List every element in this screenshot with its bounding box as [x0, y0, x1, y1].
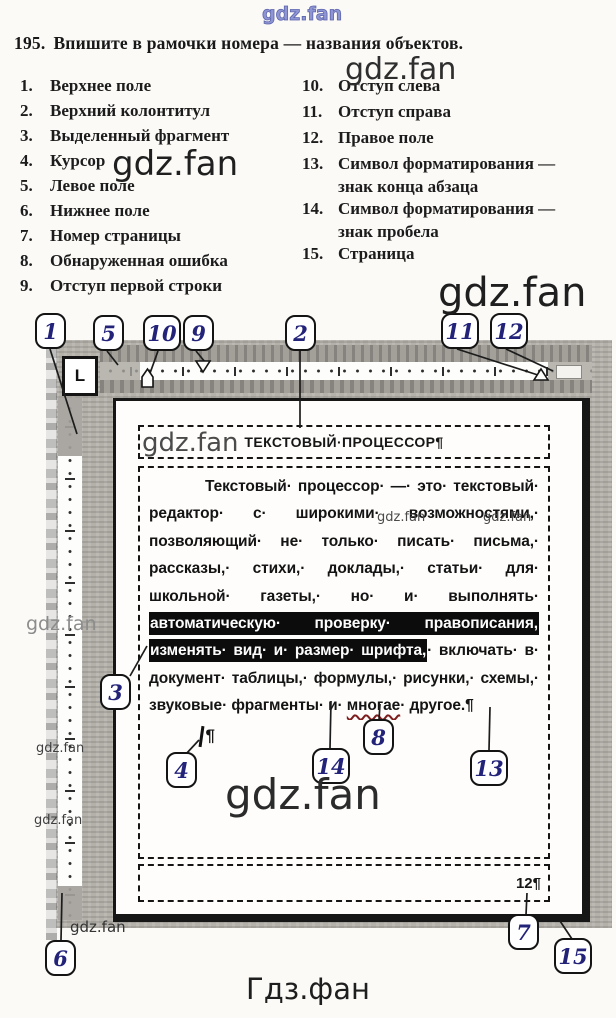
- top-margin-zone: [58, 398, 82, 456]
- callout-box-15: 15: [554, 938, 592, 974]
- page-body-area: Текстовый· процессор· —· это· текстовый·…: [138, 466, 550, 859]
- callout-box-4: 4: [166, 752, 197, 788]
- text-segment: позволяющий· не· только· писать· письма,…: [149, 533, 539, 550]
- item-number: 13.: [302, 154, 338, 174]
- misspelled-word: многае: [347, 697, 400, 714]
- list-item: 11.Отступ справа: [302, 102, 608, 128]
- item-label: Символ форматирования —: [338, 199, 555, 219]
- document-line: рассказы,· стихи,· доклады,· статьи· для…: [149, 555, 539, 582]
- list-item: 15.Страница: [302, 244, 608, 267]
- right-margin-notch: [556, 365, 582, 379]
- item-number: 7.: [20, 226, 50, 246]
- item-label: Левое поле: [50, 176, 135, 196]
- item-number: 9.: [20, 276, 50, 296]
- list-item: 5.Левое поле: [20, 176, 298, 201]
- horizontal-ruler: [100, 345, 592, 393]
- header-text: ТЕКСТОВЫЙ·ПРОЦЕССОР¶: [244, 434, 443, 450]
- vertical-ruler: [58, 398, 82, 920]
- callout-box-1: 1: [35, 313, 66, 349]
- document-line: документ· таблицы,· формулы,· рисунки,· …: [149, 665, 539, 692]
- list-item: 13.Символ форматирования —: [302, 154, 608, 177]
- item-number: 2.: [20, 101, 50, 121]
- text-segment: редактор· с· широкими· возможностями,·: [149, 505, 539, 522]
- item-number: 1.: [20, 76, 50, 96]
- text-segment: Текстовый· процессор· —· это· текстовый·: [205, 478, 539, 495]
- list-item: 4.Курсор: [20, 151, 298, 176]
- document-page: ТЕКСТОВЫЙ·ПРОЦЕССОР¶ Текстовый· процессо…: [113, 398, 590, 922]
- item-label: Выделенный фрагмент: [50, 126, 229, 146]
- left-margin-zone: [100, 362, 140, 380]
- callout-box-14: 14: [312, 748, 350, 784]
- list-item: 2.Верхний колонтитул: [20, 101, 298, 126]
- answer-list-right: 10.Отступ слева 11.Отступ справа 12.Прав…: [302, 76, 608, 267]
- text-segment: · другое.¶: [400, 697, 473, 714]
- selected-text: автоматическую· проверку· правописания,: [149, 612, 539, 635]
- text-segment: · включать· в·: [427, 642, 539, 659]
- list-item: 6.Нижнее поле: [20, 201, 298, 226]
- item-label: Страница: [338, 244, 414, 264]
- callout-box-9: 9: [183, 315, 214, 351]
- list-item: 7.Номер страницы: [20, 226, 298, 251]
- item-label-line2: знак конца абзаца: [338, 177, 608, 199]
- item-number: 12.: [302, 128, 338, 148]
- item-number: 3.: [20, 126, 50, 146]
- item-number: 5.: [20, 176, 50, 196]
- pilcrow-mark: ¶: [206, 726, 215, 746]
- text-segment: школьной· газеты,· но· и· выполнять·: [149, 588, 539, 605]
- callout-box-2: 2: [285, 315, 316, 351]
- tab-selector-label: L: [75, 366, 85, 386]
- item-number: 15.: [302, 244, 338, 264]
- ruler-tick-band: [100, 362, 592, 380]
- text-segment: рассказы,· стихи,· доклады,· статьи· для…: [149, 560, 539, 577]
- page-header-area: ТЕКСТОВЫЙ·ПРОЦЕССОР¶: [138, 425, 550, 459]
- paragraph-text: Текстовый· процессор· —· это· текстовый·…: [149, 473, 539, 720]
- document-line: редактор· с· широкими· возможностями,·: [149, 500, 539, 527]
- item-number: 10.: [302, 76, 338, 96]
- watermark: gdz.fan: [438, 270, 586, 316]
- callout-box-3: 3: [100, 674, 131, 710]
- list-item: 9.Отступ первой строки: [20, 276, 298, 301]
- watermark: gdz.fan: [262, 3, 342, 25]
- list-item: 8.Обнаруженная ошибка: [20, 251, 298, 276]
- list-item: 14.Символ форматирования —: [302, 199, 608, 222]
- item-label: Верхний колонтитул: [50, 101, 210, 121]
- list-item: 10.Отступ слева: [302, 76, 608, 102]
- document-line: звуковые· фрагменты· и· многае· другое.¶: [149, 692, 539, 719]
- document-line: автоматическую· проверку· правописания,: [149, 610, 539, 637]
- page-number: 12¶: [516, 875, 541, 892]
- item-number: 4.: [20, 151, 50, 171]
- scanned-textbook-page: { "brand": { "watermark": "gdz.fan", "wa…: [0, 0, 616, 1018]
- item-number: 11.: [302, 102, 338, 122]
- list-item: 1.Верхнее поле: [20, 76, 298, 101]
- item-label-line2: знак пробела: [338, 222, 608, 244]
- item-number: 6.: [20, 201, 50, 221]
- scan-edge-artifact: [46, 340, 57, 940]
- callout-box-5: 5: [93, 315, 124, 351]
- item-label: Отступ слева: [338, 76, 440, 96]
- callout-box-12: 12: [490, 313, 528, 349]
- selected-text: изменять· вид· и· размер· шрифта,: [149, 639, 427, 662]
- document-line: Текстовый· процессор· —· это· текстовый·: [149, 473, 539, 500]
- tab-alignment-selector: L: [62, 356, 98, 396]
- text-cursor: [199, 726, 204, 747]
- item-label: Курсор: [50, 151, 105, 171]
- answer-list-left: 1.Верхнее поле 2.Верхний колонтитул 3.Вы…: [20, 76, 298, 301]
- list-item: 12.Правое поле: [302, 128, 608, 154]
- bottom-margin-zone: [58, 886, 82, 920]
- item-label: Правое поле: [338, 128, 434, 148]
- list-item: 3.Выделенный фрагмент: [20, 126, 298, 151]
- text-segment: звуковые· фрагменты· и·: [149, 697, 347, 714]
- item-number: 14.: [302, 199, 338, 219]
- callout-box-11: 11: [441, 313, 479, 349]
- item-label: Верхнее поле: [50, 76, 151, 96]
- exercise-title: 195.Впишите в рамочки номера — названия …: [14, 33, 610, 54]
- text-segment: документ· таблицы,· формулы,· рисунки,· …: [149, 670, 539, 687]
- document-line: изменять· вид· и· размер· шрифта,· включ…: [149, 637, 539, 664]
- item-label: Номер страницы: [50, 226, 181, 246]
- callout-box-13: 13: [470, 750, 508, 786]
- callout-box-7: 7: [508, 914, 539, 950]
- document-line: позволяющий· не· только· писать· письма,…: [149, 528, 539, 555]
- item-label: Отступ справа: [338, 102, 451, 122]
- page-footer-area: 12¶: [138, 864, 550, 902]
- document-line: школьной· газеты,· но· и· выполнять·: [149, 583, 539, 610]
- item-number: 8.: [20, 251, 50, 271]
- exercise-number: 195.: [14, 33, 45, 53]
- callout-box-10: 10: [143, 315, 181, 351]
- callout-box-6: 6: [45, 940, 76, 976]
- ruler-bottom-edge: [100, 380, 592, 393]
- site-brand-footer: Гдз.фан: [0, 972, 616, 1006]
- callout-box-8: 8: [363, 719, 394, 755]
- item-label: Отступ первой строки: [50, 276, 222, 296]
- text-cursor-group: ¶: [200, 726, 215, 747]
- item-label: Символ форматирования —: [338, 154, 555, 174]
- item-label: Нижнее поле: [50, 201, 150, 221]
- item-label: Обнаруженная ошибка: [50, 251, 228, 271]
- exercise-task-text: Впишите в рамочки номера — названия объе…: [53, 33, 463, 53]
